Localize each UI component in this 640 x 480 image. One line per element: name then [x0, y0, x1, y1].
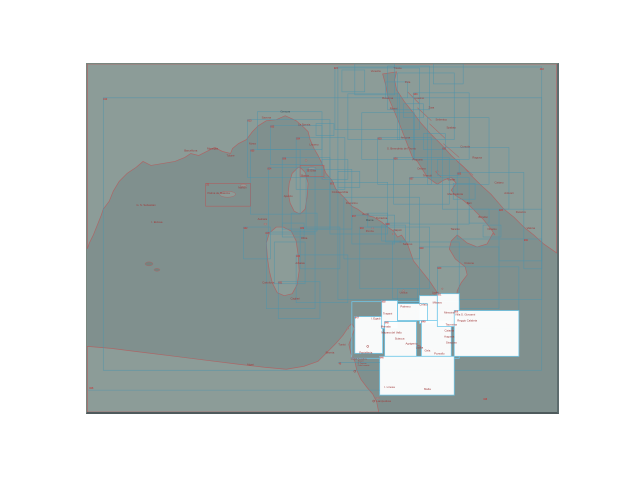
place-label: Malta: [424, 387, 431, 391]
island-zembra: [347, 328, 349, 329]
place-label: Pantelleria: [359, 350, 373, 354]
chart-number-label: 949: [421, 321, 426, 324]
chart-number-label: 933: [270, 126, 275, 129]
place-label: Asinara: [258, 217, 268, 221]
place-label: Napoli: [394, 228, 402, 232]
place-label: Mazara del Vallo: [381, 330, 402, 334]
chart-number-label: 920: [437, 267, 442, 270]
place-label: Tolone: [226, 153, 235, 157]
chart-number-label: 947: [355, 317, 360, 320]
place-label: Palma de Maiorca: [207, 191, 230, 195]
place-label: G. S. Sebastian: [136, 203, 156, 207]
island-ibiza: [145, 262, 153, 266]
map-svg: BarcellonaMarsigliaToloneNizzaSavonaGeno…: [87, 64, 557, 412]
place-label: Spalato: [447, 126, 457, 130]
place-label: Rimini: [390, 107, 398, 111]
chart-number-label: 938: [386, 223, 391, 226]
place-label: Ancona: [401, 136, 411, 140]
place-label: Livorno: [310, 143, 320, 147]
place-label: Ajaccio: [284, 194, 293, 198]
chart-number-label: 950: [454, 311, 459, 314]
chart-number-label: 925: [378, 138, 383, 141]
place-label: Vieste: [447, 177, 455, 181]
island-formentera: [154, 268, 160, 271]
place-label: Curzola: [460, 145, 470, 149]
place-label: I. Linosa: [384, 385, 395, 389]
place-label: Lampedusa: [376, 399, 391, 403]
place-label: Milazzo: [433, 301, 443, 305]
chart-number-label: 939: [524, 239, 529, 242]
place-label: Terracina: [376, 216, 388, 220]
place-label: Cagliari: [290, 297, 300, 301]
place-label: Cattaro: [494, 180, 504, 184]
chart-number-label: 922: [457, 172, 462, 175]
island-giglio: [323, 178, 325, 180]
chart-number-label: 918: [360, 227, 365, 230]
place-label: Zara: [429, 106, 435, 110]
chart-number-label: 931: [278, 282, 283, 285]
place-label: Roma: [366, 218, 374, 222]
place-label: Algeri: [247, 362, 254, 366]
place-label: Ponza: [366, 229, 374, 233]
place-label: Ortona: [417, 166, 426, 170]
place-label: Ragusa: [472, 155, 482, 159]
place-label: Pola: [405, 80, 411, 84]
island-asinara: [264, 223, 267, 225]
chart-number-label: 930: [296, 255, 301, 258]
place-label: Savona: [262, 116, 272, 120]
chart-number-label: 935: [250, 149, 255, 152]
place-label: Ustica: [400, 291, 408, 295]
place-label: Sciacca: [395, 336, 405, 340]
chart-number-label: 951: [437, 294, 442, 297]
place-label: Durazzo: [516, 210, 527, 214]
place-label: Ravenna: [382, 96, 394, 100]
place-label: Otranto: [487, 227, 497, 231]
selected-chart-area[interactable]: [454, 311, 519, 357]
place-label: Catania: [444, 328, 454, 332]
place-label: Brindisi: [479, 215, 488, 219]
chart-number-label: 923: [413, 93, 418, 96]
place-label: Olbia: [301, 236, 308, 240]
place-label: Carloforte: [262, 281, 275, 285]
chart-number-label: 921: [442, 148, 447, 151]
place-label: Sebenico: [436, 118, 448, 122]
chart-number-label: 916: [89, 387, 94, 390]
place-label: Trieste: [393, 66, 402, 70]
chart-number-label: 934: [296, 138, 301, 141]
chart-number-label: 917: [330, 182, 335, 185]
place-label: Bastia: [301, 173, 309, 177]
place-label: Cefalù: [419, 303, 427, 307]
place-label: Marsala: [381, 324, 391, 328]
chart-number-label: 913: [247, 120, 252, 123]
chart-number-label: 915: [265, 232, 270, 235]
chart-number-label: 928: [499, 209, 504, 212]
place-label: Pescara: [412, 157, 423, 161]
chart-number-label: 919: [419, 247, 424, 250]
page-background: BarcellonaMarsigliaToloneNizzaSavonaGeno…: [0, 0, 640, 480]
selected-chart-area[interactable]: [380, 356, 455, 395]
place-label: Lussino: [415, 96, 425, 100]
place-label: Messina: [444, 311, 455, 315]
nautical-chart-index-map[interactable]: BarcellonaMarsigliaToloneNizzaSavonaGeno…: [86, 63, 559, 414]
place-label: Anzio: [362, 212, 369, 216]
place-label: Biserta: [326, 350, 335, 354]
place-label: Mahón: [238, 185, 247, 189]
chart-number-label: 926: [394, 157, 399, 160]
place-label: Genova: [280, 110, 290, 114]
chart-number-label: 912: [103, 98, 108, 101]
place-label: Salerno: [403, 242, 413, 246]
place-label: Nizza: [249, 142, 256, 146]
place-label: Reggio Calabria: [457, 319, 477, 323]
place-label: Siracusa: [446, 340, 457, 344]
place-label: S. Benedetto del Tronto: [387, 147, 417, 151]
place-label: Licata: [416, 345, 424, 349]
place-label: Palermo: [400, 305, 411, 309]
chart-number-label: 448: [483, 398, 488, 401]
place-label: Barcellona: [184, 148, 198, 152]
place-label: La Spezia: [298, 123, 311, 127]
place-label: Marsiglia: [207, 147, 219, 151]
chart-number-label: 952: [382, 301, 387, 304]
place-label: Gela: [424, 348, 430, 352]
chart-number-label: 914: [267, 167, 272, 170]
place-label: Susa: [351, 356, 358, 360]
island-capraia: [305, 160, 307, 162]
place-label: Pozzallo: [434, 351, 445, 355]
place-label: I. Eivissa: [151, 220, 163, 224]
place-label: Fiumicino: [346, 201, 358, 205]
chart-number-label: 433: [540, 68, 545, 71]
place-label: Venezia: [371, 69, 381, 73]
place-label: I. Egadi: [371, 317, 381, 321]
chart-number-label: 936: [282, 157, 287, 160]
place-label: Termoli: [423, 173, 432, 177]
chart-number-label: 932: [243, 227, 248, 230]
place-label: Manfredonia: [448, 192, 464, 196]
chart-number-label: 948: [385, 322, 390, 325]
place-label: Trapani: [383, 312, 393, 316]
place-label: Bari: [467, 201, 472, 205]
chart-number-label: 927: [410, 177, 415, 180]
place-label: Valona: [527, 226, 536, 230]
place-label: Antivari: [504, 191, 514, 195]
place-label: Civitavecchia: [332, 190, 349, 194]
selected-chart-area[interactable]: [355, 317, 383, 354]
place-label: Augusta: [444, 334, 455, 338]
chart-number-label: 937: [352, 215, 357, 218]
chart-number-label: 929: [300, 227, 305, 230]
place-label: Taormina: [446, 322, 458, 326]
island-stromboli: [442, 288, 444, 289]
chart-number-label: 924: [334, 67, 339, 70]
place-label: Taranto: [451, 227, 461, 231]
chart-number-label: 946: [380, 356, 385, 359]
place-label: Tunisi: [338, 342, 346, 346]
place-label: Crotone: [464, 261, 474, 265]
place-label: Arbatax: [295, 261, 305, 265]
